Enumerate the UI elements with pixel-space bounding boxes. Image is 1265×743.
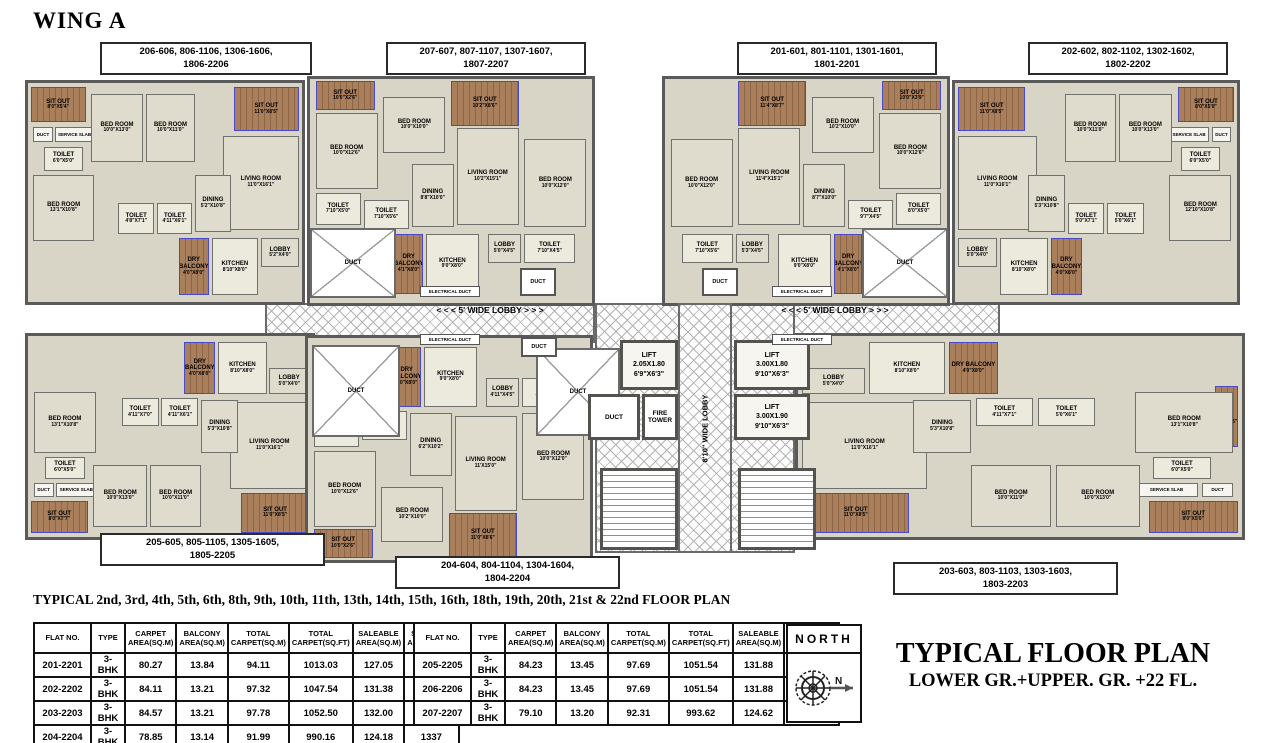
- table-header: TYPE: [471, 623, 505, 653]
- table-cell: 207-2207: [414, 701, 471, 725]
- table-cell: 13.21: [176, 701, 227, 725]
- room-dimensions: 4'11"X6'1": [163, 219, 187, 225]
- room-dimensions: 4'11"X4'5": [491, 393, 515, 399]
- unit-number-line: 203-603, 803-1103, 1303-1603,: [939, 566, 1072, 578]
- table-header: BALCONY AREA(SQ.M): [556, 623, 607, 653]
- unit-number-line: 201-601, 801-1101, 1301-1601,: [770, 46, 903, 58]
- room-dimensions: 4'8"X7'1": [125, 219, 147, 225]
- room-sit-out-unit-202: SIT OUT11'0"X8'5": [958, 87, 1026, 131]
- room-dimensions: 11'X15'0": [475, 464, 497, 470]
- room-dimensions: 11'0"X8'5": [254, 110, 278, 116]
- room-toilet-unit-203: TOILET4'11"X7'1": [976, 398, 1034, 426]
- room-dry-balcony-unit-203: DRY BALCONY4'0"X8'0": [949, 342, 998, 394]
- unit-number-line: 1807-2207: [463, 59, 508, 71]
- room-dimensions: 9'0"X8'0": [442, 264, 464, 270]
- table-header: TOTAL CARPET(SQ.M): [608, 623, 669, 653]
- room-dimensions: 13'1"X10'8": [1171, 423, 1198, 429]
- lobby-label-left: < < < 5' WIDE LOBBY > > >: [430, 303, 550, 317]
- table-cell: 13.45: [556, 677, 607, 701]
- table-cell: 3-BHK: [471, 653, 505, 677]
- room-dimensions: 8'10"X8'0": [895, 369, 919, 375]
- room-dimensions: 11'0"X16'1": [256, 446, 283, 452]
- room-dimensions: 11'0"X8'5": [263, 513, 287, 519]
- table-cell: 91.99: [228, 725, 289, 743]
- lift-3: LIFT 3.00X1.90 9'10"X6'3": [734, 394, 810, 440]
- room-toilet-unit-206: TOILET4'8"X7'1": [118, 203, 154, 234]
- unit-number-line: 207-607, 807-1107, 1307-1607,: [419, 46, 552, 58]
- room-toilet-unit-206: TOILET6'0"X5'0": [44, 147, 82, 171]
- duct-room: DUCT: [588, 394, 640, 440]
- room-dimensions: 4'11"X7'1": [992, 413, 1016, 419]
- room-dimensions: 4'1"X8'0": [837, 268, 859, 274]
- room-dimensions: 8'0"X7'7": [48, 517, 70, 523]
- room-service-slab-unit-205: SERVICE SLAB: [56, 483, 96, 497]
- table-cell: 993.62: [669, 701, 733, 725]
- duct-small-1: DUCT: [520, 268, 556, 296]
- unit-number-line: 1804-2204: [485, 573, 530, 585]
- room-service-slab-unit-202: SERVICE SLAB: [1169, 127, 1208, 142]
- table-cell: 97.69: [608, 677, 669, 701]
- room-dimensions: 10'0"X12'0": [540, 457, 567, 463]
- room-dimensions: 4'0"X8'0": [189, 372, 211, 378]
- room-lobby-unit-203: LOBBY5'0"X4'0": [802, 368, 864, 394]
- unit-number-label-201: 201-601, 801-1101, 1301-1601,1801-2201: [737, 42, 937, 75]
- electrical-duct-1: ELECTRICAL DUCT: [420, 286, 480, 297]
- room-toilet-unit-205: TOILET4'11"X6'1": [161, 398, 198, 426]
- table-cell: 203-2203: [34, 701, 91, 725]
- unit-number-label-203: 203-603, 803-1103, 1303-1603,1803-2203: [893, 562, 1118, 595]
- room-bed-room-unit-201: BED ROOM10'0"X12'0": [671, 139, 733, 226]
- room-dimensions: 10'0"X2'6": [333, 96, 357, 102]
- table-row: 207-22073-BHK79.1013.2092.31993.62124.62…: [414, 701, 839, 725]
- table-cell: 3-BHK: [471, 677, 505, 701]
- unit-number-line: 1801-2201: [814, 59, 859, 71]
- room-lobby-unit-207: LOBBY5'0"X4'5": [488, 234, 522, 263]
- room-sit-out-unit-206: SIT OUT11'0"X8'5": [234, 87, 300, 131]
- room-sit-out-unit-202: SIT OUT8'0"X5'0": [1178, 87, 1234, 122]
- north-indicator: NORTH N: [786, 624, 862, 723]
- room-dimensions: 4'0"X8'0": [183, 271, 205, 277]
- table-row: 206-22063-BHK84.2313.4597.691051.54131.8…: [414, 677, 839, 701]
- table-row: 205-22053-BHK84.2313.4597.691051.54131.8…: [414, 653, 839, 677]
- room-dimensions: 10'0"X13'0": [107, 496, 134, 502]
- room-dimensions: 5'2"X10'8": [201, 204, 225, 210]
- room-lobby-unit-206: LOBBY5'2"X4'0": [261, 238, 299, 266]
- room-dimensions: 8'10"X8'0": [230, 369, 254, 375]
- table-cell: 990.16: [289, 725, 353, 743]
- room-bed-room-unit-204: BED ROOM10'0"X12'6": [314, 451, 376, 526]
- room-dimensions: 7'10"X5'6": [695, 249, 719, 255]
- room-dimensions: 10'2"X15'1": [474, 177, 501, 183]
- room-dimensions: 5'0"X4'0": [967, 253, 989, 259]
- room-dimensions: 5'0"X7'1": [1075, 219, 1097, 225]
- electrical-duct-2: ELECTRICAL DUCT: [420, 334, 480, 345]
- room-toilet-unit-203: TOILET6'0"X5'0": [1153, 457, 1211, 479]
- room-dimensions: 12'10"X10'8": [1185, 208, 1215, 214]
- table-cell: 201-2201: [34, 653, 91, 677]
- table-cell: 3-BHK: [91, 725, 125, 743]
- table-header: SALEABLE AREA(SQ.M): [353, 623, 404, 653]
- unit-206: SIT OUT8'0"X5'4"DUCTSERVICE SLABTOILET6'…: [25, 80, 305, 305]
- room-dimensions: 10'0"X13'0": [1132, 128, 1159, 134]
- table-cell: 13.20: [556, 701, 607, 725]
- room-name: SERVICE SLAB: [1150, 487, 1183, 492]
- table-cell: 202-2202: [34, 677, 91, 701]
- unit-number-line: 204-604, 804-1104, 1304-1604,: [441, 560, 574, 572]
- table-cell: 13.45: [556, 653, 607, 677]
- room-living-room-unit-204: LIVING ROOM11'X15'0": [455, 416, 517, 511]
- floor-plan-page: WING A 8'10" WIDE LOBBY< < < 5' WIDE LOB…: [0, 0, 1265, 743]
- table-cell: 13.21: [176, 677, 227, 701]
- room-bed-room-unit-206: BED ROOM10'0"X13'0": [91, 94, 143, 162]
- table-cell: 3-BHK: [471, 701, 505, 725]
- room-dimensions: 4'1"X8'0": [398, 268, 420, 274]
- room-dimensions: 8'0"X5'0": [908, 209, 930, 215]
- table-cell: 204-2204: [34, 725, 91, 743]
- table-cell: 92.31: [608, 701, 669, 725]
- area-table-1: FLAT NO.TYPECARPET AREA(SQ.M)BALCONY ARE…: [33, 622, 460, 743]
- room-sit-out-unit-201: SIT OUT10'0"X3'9": [882, 81, 941, 110]
- table-row: 201-22013-BHK80.2713.8494.111013.03127.0…: [34, 653, 459, 677]
- lift-3-label: LIFT 3.00X1.90 9'10"X6'3": [755, 403, 789, 430]
- duct-small-1-label: DUCT: [530, 279, 545, 285]
- room-dining-unit-206: DINING5'2"X10'8": [195, 175, 231, 232]
- table-header: SALEABLE AREA(SQ.M): [733, 623, 784, 653]
- table-header: BALCONY AREA(SQ.M): [176, 623, 227, 653]
- room-bed-room-unit-205: BED ROOM10'0"X11'0": [150, 465, 201, 527]
- room-lobby-unit-202: LOBBY5'0"X4'0": [958, 238, 997, 266]
- room-dimensions: 10'2"X10'0": [829, 125, 856, 131]
- electrical-duct-4: ELECTRICAL DUCT: [772, 334, 832, 345]
- svg-text:N: N: [835, 676, 842, 687]
- room-dimensions: 9'0"X8'0": [794, 264, 816, 270]
- room-bed-room-unit-206: BED ROOM13'1"X10'8": [33, 175, 93, 241]
- room-bed-room-unit-207: BED ROOM10'0"X10'0": [383, 97, 445, 153]
- table-row: 202-22023-BHK84.1113.2197.321047.54131.3…: [34, 677, 459, 701]
- room-dimensions: 5'2"X4'0": [269, 253, 291, 259]
- room-dimensions: 5'0"X4'0": [823, 382, 845, 388]
- room-bed-room-unit-205: BED ROOM13'1"X10'8": [34, 392, 96, 452]
- table-header: TOTAL CARPET(SQ.FT): [669, 623, 733, 653]
- compass-icon: N: [788, 654, 860, 722]
- room-dimensions: 10'0"X10'0": [401, 125, 428, 131]
- lobby-label-right-label: < < < 5' WIDE LOBBY > > >: [781, 305, 888, 315]
- unit-202: SIT OUT8'0"X5'0"DUCTSERVICE SLABTOILET6'…: [952, 80, 1240, 305]
- room-dimensions: 10'0"X12'0": [688, 184, 715, 190]
- unit-number-line: 1805-2205: [190, 550, 235, 562]
- room-dimensions: 11'4"X8'7": [760, 104, 784, 110]
- room-toilet-unit-203: TOILET5'0"X6'1": [1038, 398, 1096, 426]
- table-cell: 79.10: [505, 701, 556, 725]
- table-cell: 1051.54: [669, 653, 733, 677]
- room-toilet-unit-207: TOILET7'10"X5'6": [364, 200, 409, 229]
- room-dimensions: 10'0"X12'0": [542, 184, 569, 190]
- wide-lobby-vertical: 8'10" WIDE LOBBY: [678, 303, 732, 553]
- room-dimensions: 10'0"X2'6": [331, 544, 355, 550]
- north-label: NORTH: [788, 626, 860, 654]
- lift-1: LIFT 2.05X1.80 6'9"X6'3": [620, 340, 678, 390]
- table-row: 204-22043-BHK78.8513.1491.99990.16124.18…: [34, 725, 459, 743]
- room-sit-out-unit-203: SIT OUT11'0"X8'5": [802, 493, 909, 533]
- typical-floors-line: TYPICAL 2nd, 3rd, 4th, 5th, 6th, 8th, 9t…: [33, 592, 730, 608]
- room-name: DRY BALCONY: [185, 359, 215, 372]
- room-bed-room-unit-207: BED ROOM10'0"X12'6": [316, 113, 378, 189]
- room-dimensions: 10'0"X11'0": [162, 496, 189, 502]
- table-cell: 132.00: [353, 701, 404, 725]
- room-dimensions: 10'0"X11'0": [1077, 128, 1104, 134]
- room-duct-unit-206: DUCT: [33, 127, 52, 142]
- duct-small-2-label: DUCT: [712, 279, 727, 285]
- room-dimensions: 11'0"X8'5": [844, 513, 868, 519]
- electrical-duct-4-label: ELECTRICAL DUCT: [781, 337, 823, 342]
- table-header: TYPE: [91, 623, 125, 653]
- room-sit-out-unit-201: SIT OUT11'4"X8'7": [738, 81, 806, 126]
- room-toilet-unit-205: TOILET6'0"X5'0": [45, 457, 85, 479]
- room-bed-room-unit-202: BED ROOM10'0"X13'0": [1119, 94, 1173, 162]
- room-name: DRY BALCONY: [834, 254, 862, 267]
- table-cell: 131.88: [733, 677, 784, 701]
- room-dimensions: 4'0"X8'0": [963, 369, 985, 375]
- table-cell: 3-BHK: [91, 677, 125, 701]
- room-bed-room-unit-205: BED ROOM10'0"X13'0": [93, 465, 147, 527]
- table-header: FLAT NO.: [34, 623, 91, 653]
- room-kitchen-unit-206: KITCHEN8'10"X8'0": [212, 238, 259, 295]
- table-cell: 3-BHK: [91, 701, 125, 725]
- room-lobby-unit-201: LOBBY5'3"X4'5": [736, 234, 770, 263]
- area-table-2: FLAT NO.TYPECARPET AREA(SQ.M)BALCONY ARE…: [413, 622, 840, 726]
- room-dry-balcony-unit-206: DRY BALCONY4'0"X8'0": [179, 238, 209, 295]
- room-dining-unit-203: DINING5'3"X10'8": [913, 400, 971, 452]
- room-dimensions: 10'0"X3'9": [900, 96, 924, 102]
- table-cell: 131.38: [353, 677, 404, 701]
- unit-203: SIT OUT3'7"X9'5"SIT OUT8'0"X5'0"DUCTSERV…: [795, 333, 1245, 540]
- table-header: FLAT NO.: [414, 623, 471, 653]
- duct-small-2: DUCT: [702, 268, 738, 296]
- room-lobby-unit-205: LOBBY5'0"X4'0": [269, 368, 309, 394]
- room-sit-out-unit-207: SIT OUT10'2"X8'6": [451, 81, 519, 126]
- staircase-left: [600, 468, 678, 550]
- unit-number-line: 202-602, 802-1102, 1302-1602,: [1061, 46, 1194, 58]
- room-name: DRY BALCONY: [395, 254, 423, 267]
- room-dimensions: 5'0"X6'1": [1115, 219, 1137, 225]
- room-toilet-unit-205: TOILET4'11"X7'0": [122, 398, 159, 426]
- table-cell: 84.57: [125, 701, 176, 725]
- room-bed-room-unit-201: BED ROOM10'2"X10'0": [812, 97, 874, 153]
- duct-shaft-center-label: DUCT: [570, 389, 587, 395]
- room-bed-room-unit-206: BED ROOM10'0"X11'0": [146, 94, 195, 162]
- lobby-label-right: < < < 5' WIDE LOBBY > > >: [775, 303, 895, 317]
- room-dimensions: 5'3"X4'5": [742, 249, 764, 255]
- table-cell: 131.88: [733, 653, 784, 677]
- room-dimensions: 10'0"X13'0": [103, 128, 130, 134]
- room-dimensions: 11'0"X16'1": [851, 446, 878, 452]
- wing-title: WING A: [33, 8, 127, 34]
- electrical-duct-2-label: ELECTRICAL DUCT: [429, 337, 471, 342]
- table-cell: 205-2205: [414, 653, 471, 677]
- table-cell: 3-BHK: [91, 653, 125, 677]
- room-dimensions: 5'0"X6'1": [1056, 413, 1078, 419]
- unit-number-label-206: 206-606, 806-1106, 1306-1606,1806-2206: [100, 42, 312, 75]
- room-dimensions: 9'7"X4'5": [860, 215, 882, 221]
- room-name: DRY BALCONY: [1052, 257, 1082, 270]
- room-dining-unit-207: DINING8'8"X10'0": [412, 164, 454, 227]
- unit-205: SIT OUT8'0"X7'7"DUCTSERVICE SLABTOILET6'…: [25, 333, 315, 540]
- room-dimensions: 7'10"X5'6": [374, 215, 398, 221]
- room-service-slab-unit-203: SERVICE SLAB: [1135, 483, 1197, 497]
- room-kitchen-unit-204: KITCHEN9'0"X8'0": [424, 347, 478, 407]
- room-kitchen-unit-203: KITCHEN8'10"X8'0": [869, 342, 944, 394]
- room-living-room-unit-205: LIVING ROOM11'0"X16'1": [230, 402, 310, 488]
- sheet-subtitle: LOWER GR.+UPPER. GR. +22 FL.: [868, 670, 1238, 692]
- room-sit-out-unit-204: SIT OUT11'0"X8'6": [449, 513, 517, 557]
- table-cell: 97.78: [228, 701, 289, 725]
- duct-small-3-label: DUCT: [531, 344, 546, 350]
- room-dimensions: 5'3"X10'8": [1034, 204, 1058, 210]
- room-dimensions: 10'0"X13'0": [1084, 496, 1111, 502]
- room-dimensions: 9'0"X8'0": [440, 377, 462, 383]
- room-dimensions: 6'2"X10'2": [418, 445, 442, 451]
- table-cell: 13.14: [176, 725, 227, 743]
- room-dimensions: 8'7"X10'0": [812, 196, 836, 202]
- table-cell: 1051.54: [669, 677, 733, 701]
- room-kitchen-unit-201: KITCHEN9'0"X8'0": [778, 234, 832, 294]
- room-toilet-unit-206: TOILET4'11"X6'1": [157, 203, 193, 234]
- room-kitchen-unit-205: KITCHEN8'10"X8'0": [218, 342, 266, 394]
- room-dimensions: 10'0"X12'6": [331, 490, 358, 496]
- table-cell: 84.11: [125, 677, 176, 701]
- room-sit-out-unit-203: SIT OUT8'0"X5'0": [1149, 501, 1238, 533]
- electrical-duct-3: ELECTRICAL DUCT: [772, 286, 832, 297]
- room-dimensions: 4'0"X8'0": [1056, 271, 1078, 277]
- room-dimensions: 10'0"X11'0": [998, 496, 1025, 502]
- room-dimensions: 11'0"X8'6": [471, 536, 495, 542]
- duct-shaft-bottom-left: DUCT: [312, 345, 400, 437]
- room-dry-balcony-unit-202: DRY BALCONY4'0"X8'0": [1051, 238, 1082, 295]
- sheet-title: TYPICAL FLOOR PLAN: [868, 638, 1238, 670]
- unit-number-label-207: 207-607, 807-1107, 1307-1607,1807-2207: [386, 42, 586, 75]
- room-sit-out-unit-207: SIT OUT10'0"X2'6": [316, 81, 375, 110]
- room-dimensions: 6'0"X5'0": [53, 159, 75, 165]
- duct-shaft-top-right-label: DUCT: [897, 260, 914, 266]
- fire-tower: FIRE TOWER: [642, 394, 678, 440]
- room-toilet-unit-202: TOILET5'0"X7'1": [1068, 203, 1105, 234]
- room-living-room-unit-201: LIVING ROOM11'4"X15'1": [738, 128, 800, 224]
- room-name: DUCT: [37, 487, 50, 492]
- room-dimensions: 11'0"X8'5": [980, 110, 1004, 116]
- table-cell: 97.69: [608, 653, 669, 677]
- room-dining-unit-202: DINING5'3"X10'8": [1028, 175, 1065, 232]
- room-dimensions: 10'0"X12'6": [333, 151, 360, 157]
- room-bed-room-unit-201: BED ROOM10'0"X12'6": [879, 113, 941, 189]
- room-name: SERVICE SLAB: [1172, 132, 1205, 137]
- room-dimensions: 7'10"X5'0": [326, 209, 350, 215]
- room-name: DRY BALCONY: [179, 257, 209, 270]
- table-cell: 78.85: [125, 725, 176, 743]
- unit-number-label-202: 202-602, 802-1102, 1302-1602,1802-2202: [1028, 42, 1228, 75]
- room-dimensions: 11'4"X15'1": [756, 177, 783, 183]
- room-dimensions: 5'3"X10'8": [208, 427, 232, 433]
- unit-number-label-205: 205-605, 805-1105, 1305-1605,1805-2205: [100, 533, 325, 566]
- room-toilet-unit-202: TOILET5'0"X6'1": [1107, 203, 1144, 234]
- room-name: SERVICE SLAB: [60, 487, 93, 492]
- room-dimensions: 13'1"X10'8": [50, 208, 77, 214]
- table-cell: 206-2206: [414, 677, 471, 701]
- table-header: CARPET AREA(SQ.M): [505, 623, 556, 653]
- unit-number-label-204: 204-604, 804-1104, 1304-1604,1804-2204: [395, 556, 620, 589]
- room-bed-room-unit-203: BED ROOM10'0"X13'0": [1056, 465, 1140, 527]
- table-cell: 84.23: [505, 677, 556, 701]
- room-living-room-unit-206: LIVING ROOM11'0"X16'1": [223, 136, 300, 230]
- room-dimensions: 8'10"X8'0": [1012, 268, 1036, 274]
- room-living-room-unit-202: LIVING ROOM11'0"X16'1": [958, 136, 1037, 230]
- lobby-label-left-label: < < < 5' WIDE LOBBY > > >: [436, 305, 543, 315]
- duct-shaft-bottom-left-label: DUCT: [348, 388, 365, 394]
- room-dining-unit-204: DINING6'2"X10'2": [410, 413, 452, 475]
- room-dimensions: 5'3"X10'8": [930, 427, 954, 433]
- room-dry-balcony-unit-205: DRY BALCONY4'0"X8'0": [184, 342, 215, 394]
- room-toilet-unit-201: TOILET9'7"X4'5": [848, 200, 893, 229]
- fire-tower-label: FIRE TOWER: [648, 410, 672, 424]
- room-name: SERVICE SLAB: [58, 132, 91, 137]
- room-living-room-unit-203: LIVING ROOM11'0"X16'1": [802, 402, 926, 488]
- electrical-duct-1-label: ELECTRICAL DUCT: [429, 289, 471, 294]
- table-header: TOTAL CARPET(SQ.FT): [289, 623, 353, 653]
- room-dry-balcony-unit-207: DRY BALCONY4'1"X8'0": [395, 234, 423, 294]
- room-bed-room-unit-203: BED ROOM10'0"X11'0": [971, 465, 1051, 527]
- room-duct-unit-205: DUCT: [34, 483, 54, 497]
- unit-number-line: 205-605, 805-1105, 1305-1605,: [146, 537, 279, 549]
- room-dimensions: 6'0"X5'0": [54, 468, 76, 474]
- duct-small-3: DUCT: [521, 337, 557, 357]
- room-dimensions: 10'0"X12'6": [897, 151, 924, 157]
- room-bed-room-unit-207: BED ROOM10'0"X12'0": [524, 139, 586, 226]
- room-dimensions: 8'0"X5'4": [47, 105, 69, 111]
- table-cell: 124.62: [733, 701, 784, 725]
- room-bed-room-unit-203: BED ROOM13'1"X10'8": [1135, 392, 1233, 452]
- room-name: DUCT: [1211, 487, 1224, 492]
- room-dimensions: 8'0"X5'0": [1195, 105, 1217, 111]
- room-dimensions: 8'8"X10'0": [420, 196, 444, 202]
- room-dimensions: 13'1"X10'8": [51, 423, 78, 429]
- table-cell: 1013.03: [289, 653, 353, 677]
- electrical-duct-3-label: ELECTRICAL DUCT: [781, 289, 823, 294]
- room-dimensions: 4'11"X7'0": [128, 413, 152, 419]
- room-duct-unit-203: DUCT: [1202, 483, 1233, 497]
- room-dimensions: 10'2"X8'6": [473, 104, 497, 110]
- unit-number-line: 1803-2203: [983, 579, 1028, 591]
- room-dry-balcony-unit-201: DRY BALCONY4'1"X8'0": [834, 234, 862, 294]
- table-cell: 124.18: [353, 725, 404, 743]
- duct-room-label: DUCT: [605, 414, 623, 421]
- duct-shaft-top-left-label: DUCT: [345, 260, 362, 266]
- room-living-room-unit-207: LIVING ROOM10'2"X15'1": [457, 128, 519, 224]
- table-cell: 1337: [404, 725, 458, 743]
- staircase-right: [738, 468, 816, 550]
- room-toilet-unit-202: TOILET6'0"X5'0": [1181, 147, 1220, 171]
- room-duct-unit-202: DUCT: [1212, 127, 1232, 142]
- room-dimensions: 10'2"X10'0": [399, 515, 426, 521]
- room-dimensions: 4'11"X6'1": [168, 413, 192, 419]
- table-cell: 80.27: [125, 653, 176, 677]
- sheet-title-block: TYPICAL FLOOR PLAN LOWER GR.+UPPER. GR. …: [868, 638, 1238, 692]
- table-row: 203-22033-BHK84.5713.2197.781052.50132.0…: [34, 701, 459, 725]
- room-dimensions: 8'0"X5'0": [1182, 517, 1204, 523]
- unit-number-line: 206-606, 806-1106, 1306-1606,: [139, 46, 272, 58]
- unit-number-line: 1802-2202: [1105, 59, 1150, 71]
- room-dimensions: 11'0"X16'1": [984, 183, 1011, 189]
- table-cell: 13.84: [176, 653, 227, 677]
- room-sit-out-unit-206: SIT OUT8'0"X5'4": [31, 87, 86, 122]
